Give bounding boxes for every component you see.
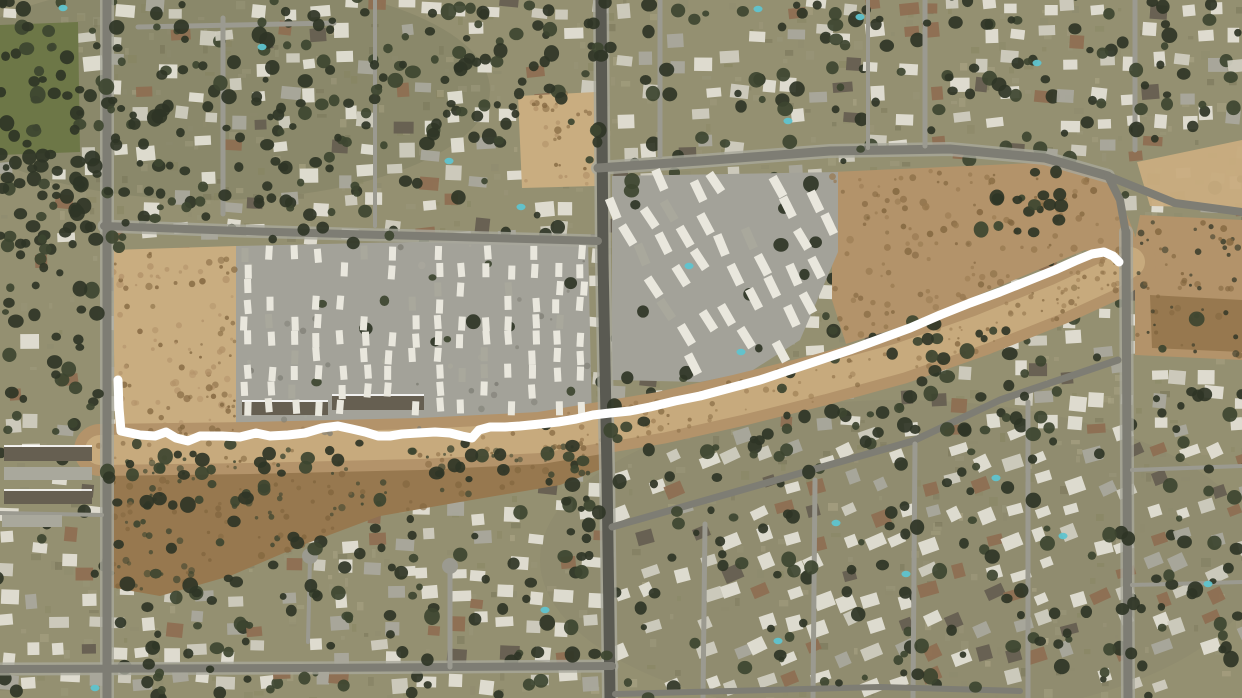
satellite-canvas[interactable] — [0, 0, 1242, 698]
satellite-map[interactable] — [0, 0, 1242, 698]
